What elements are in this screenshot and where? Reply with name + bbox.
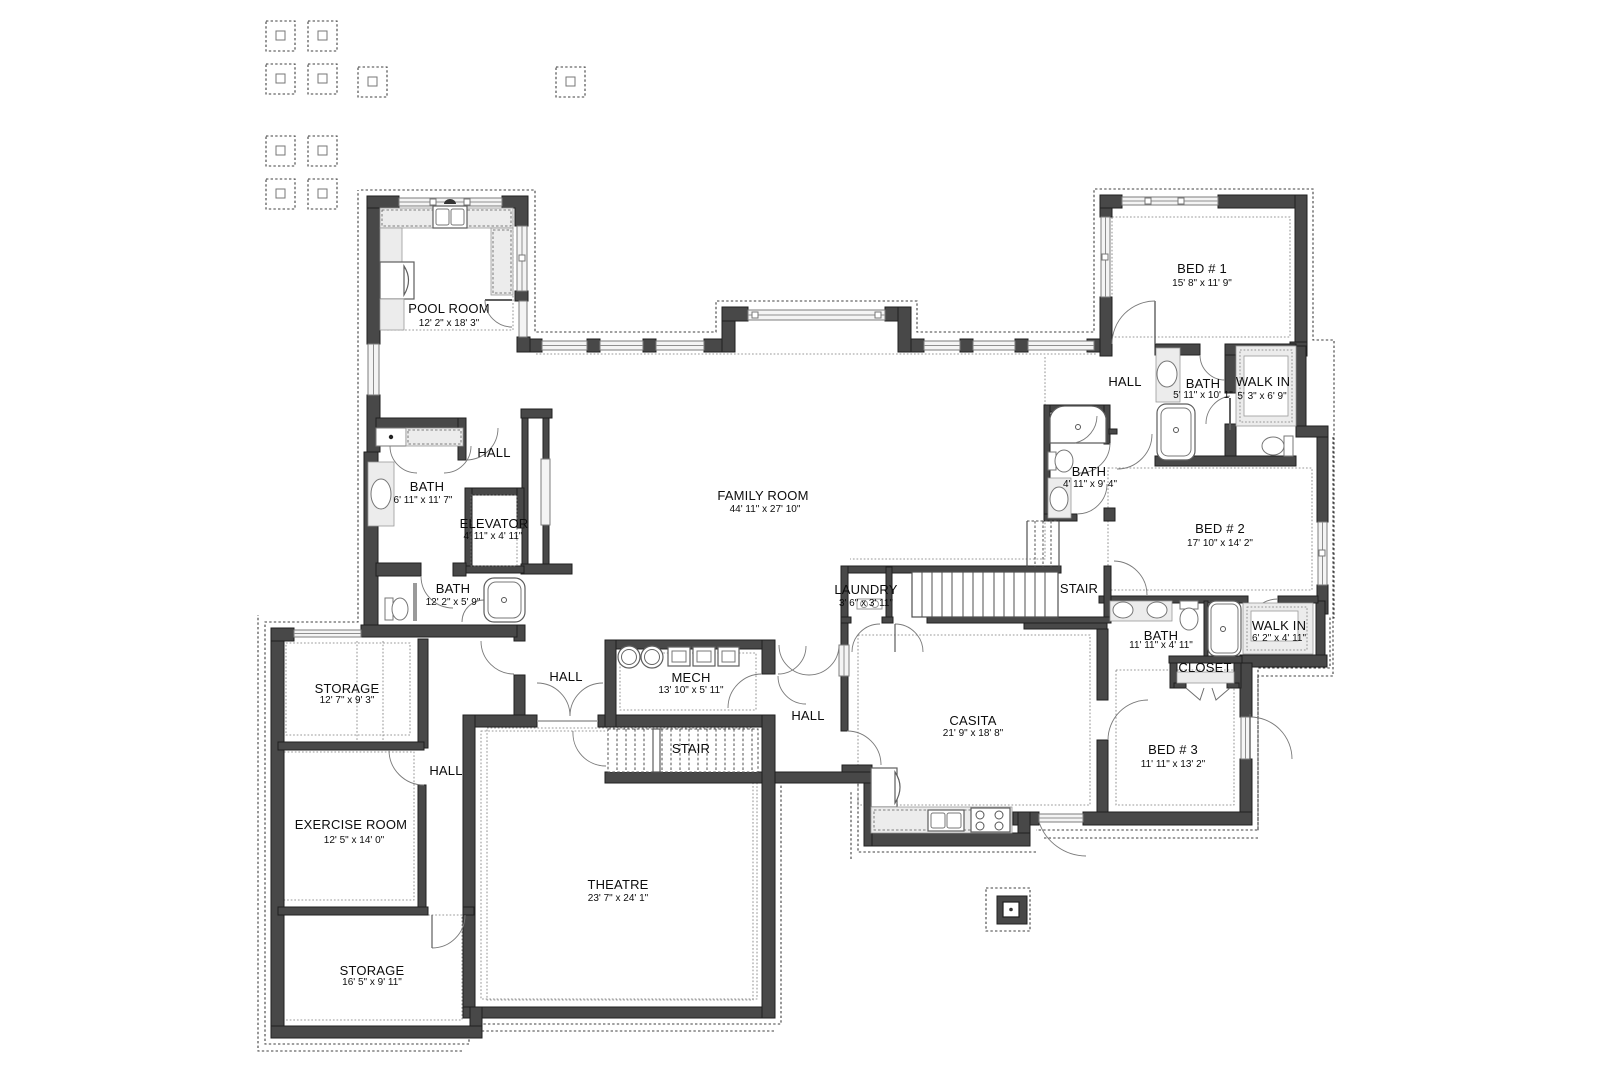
svg-text:HALL: HALL <box>791 708 824 723</box>
svg-text:MECH: MECH <box>671 670 710 685</box>
svg-text:HALL: HALL <box>477 445 510 460</box>
svg-text:CASITA: CASITA <box>949 713 996 728</box>
svg-text:16' 5" x 9' 11": 16' 5" x 9' 11" <box>342 977 402 988</box>
svg-text:4' 11" x 9' 4": 4' 11" x 9' 4" <box>1063 479 1118 490</box>
svg-text:12' 2" x 5' 9": 12' 2" x 5' 9" <box>426 597 481 608</box>
svg-text:WALK IN: WALK IN <box>1236 374 1290 389</box>
svg-text:6' 11" x 11' 7": 6' 11" x 11' 7" <box>394 495 453 506</box>
svg-text:STAIR: STAIR <box>672 741 710 756</box>
svg-text:17' 10" x 14' 2": 17' 10" x 14' 2" <box>1187 538 1253 549</box>
svg-text:44' 11" x 27' 10": 44' 11" x 27' 10" <box>730 504 801 515</box>
svg-text:BATH: BATH <box>436 581 471 596</box>
svg-text:THEATRE: THEATRE <box>587 877 648 892</box>
svg-text:12' 5" x 14' 0": 12' 5" x 14' 0" <box>324 835 385 846</box>
svg-text:ELEVATOR: ELEVATOR <box>460 516 529 531</box>
svg-text:6' 2" x 4' 11": 6' 2" x 4' 11" <box>1252 633 1307 644</box>
svg-text:BED # 3: BED # 3 <box>1148 742 1198 757</box>
svg-text:BATH: BATH <box>1072 464 1107 479</box>
svg-text:CLOSET: CLOSET <box>1178 660 1231 675</box>
svg-text:4' 11" x 4' 11": 4' 11" x 4' 11" <box>464 531 523 542</box>
svg-text:BED # 1: BED # 1 <box>1177 261 1227 276</box>
svg-text:12' 2" x 18' 3": 12' 2" x 18' 3" <box>419 318 480 329</box>
svg-text:BATH: BATH <box>410 479 445 494</box>
svg-text:EXERCISE ROOM: EXERCISE ROOM <box>295 817 407 832</box>
svg-text:LAUNDRY: LAUNDRY <box>834 582 897 597</box>
svg-text:HALL: HALL <box>549 669 582 684</box>
svg-text:15' 8" x 11' 9": 15' 8" x 11' 9" <box>1172 278 1232 289</box>
svg-text:STAIR: STAIR <box>1060 581 1098 596</box>
svg-text:11' 11" x 4' 11": 11' 11" x 4' 11" <box>1129 640 1193 651</box>
svg-text:5' 11" x 10' 1": 5' 11" x 10' 1" <box>1173 390 1233 401</box>
svg-text:5' 3" x 6' 9": 5' 3" x 6' 9" <box>1237 391 1287 402</box>
svg-text:WALK IN: WALK IN <box>1252 618 1306 633</box>
svg-text:BED # 2: BED # 2 <box>1195 521 1245 536</box>
svg-text:STORAGE: STORAGE <box>340 963 405 978</box>
svg-text:FAMILY ROOM: FAMILY ROOM <box>717 488 808 503</box>
svg-text:HALL: HALL <box>1108 374 1141 389</box>
svg-text:3' 6" x 3' 11": 3' 6" x 3' 11" <box>839 598 894 609</box>
svg-text:21' 9" x 18' 8": 21' 9" x 18' 8" <box>943 728 1004 739</box>
svg-text:12' 7" x 9' 3": 12' 7" x 9' 3" <box>320 695 375 706</box>
svg-text:POOL ROOM: POOL ROOM <box>408 301 490 316</box>
svg-text:11' 11" x 13' 2": 11' 11" x 13' 2" <box>1141 759 1206 770</box>
svg-text:13' 10" x 5' 11": 13' 10" x 5' 11" <box>658 685 724 696</box>
svg-text:HALL: HALL <box>429 763 462 778</box>
svg-text:23' 7" x 24' 1": 23' 7" x 24' 1" <box>588 893 649 904</box>
svg-text:STORAGE: STORAGE <box>315 681 380 696</box>
svg-text:BATH: BATH <box>1186 376 1221 391</box>
